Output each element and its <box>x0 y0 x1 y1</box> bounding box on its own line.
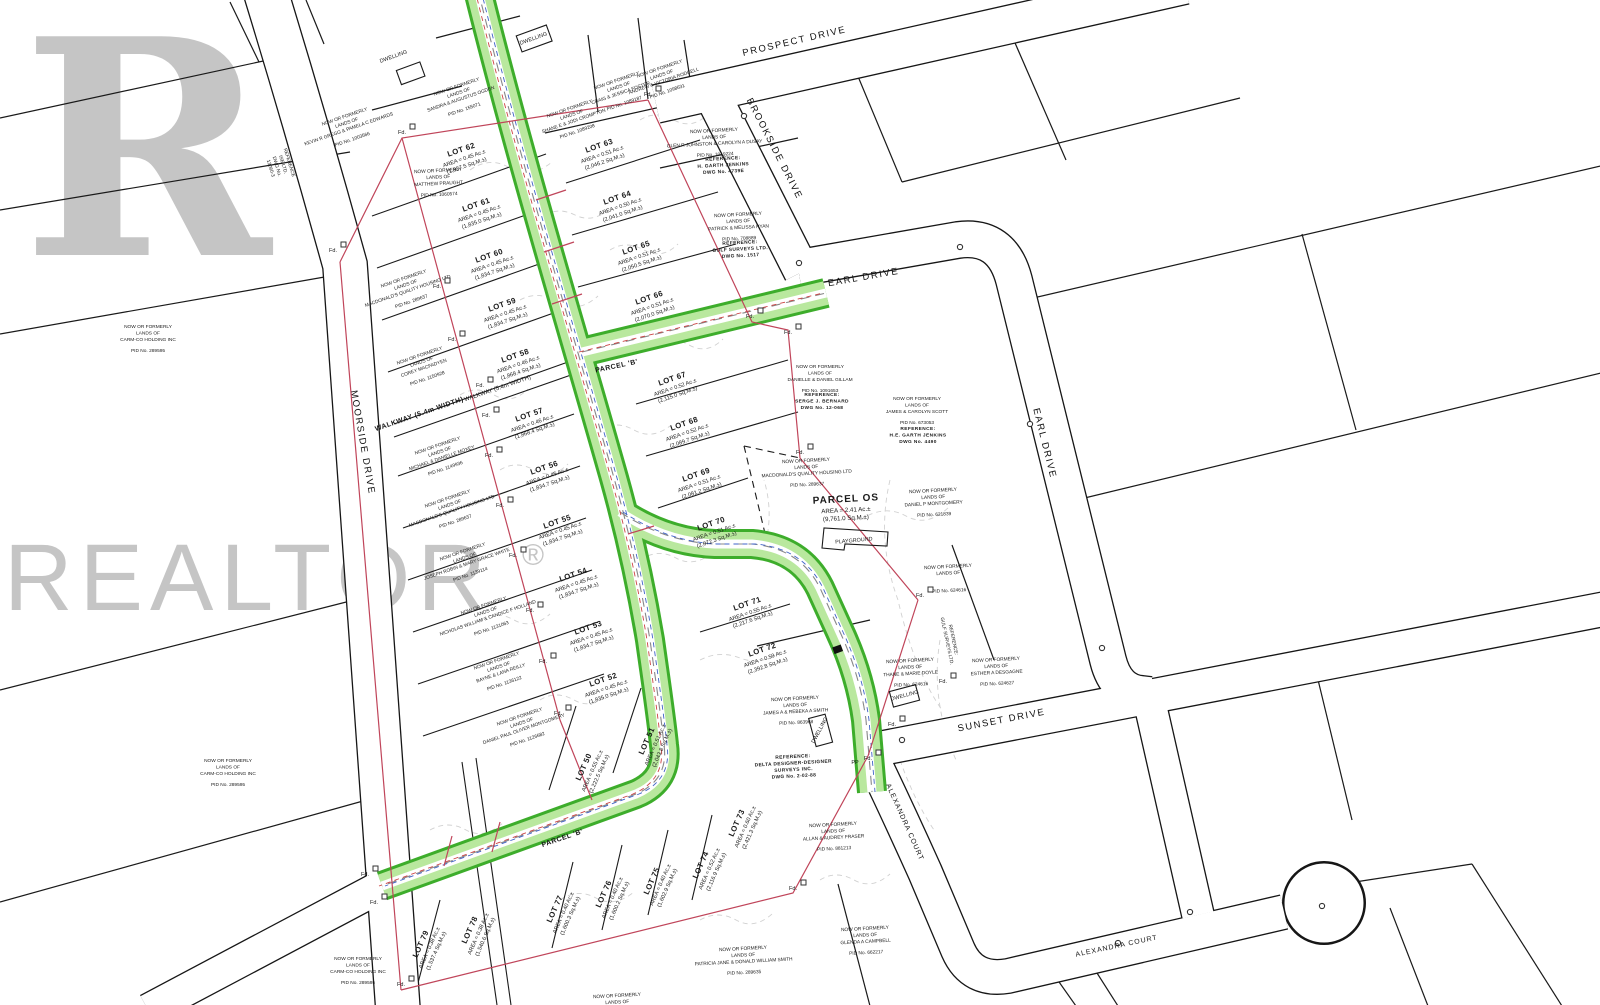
found-marker-box <box>928 587 933 592</box>
parcel-os-area-m: (9,761.0 Sq.M.±) <box>823 514 869 523</box>
owner-name: DANIELLE & DANIEL GILLAM <box>787 377 852 383</box>
found-marker-label: Fd. <box>539 659 547 665</box>
owner-pid: PID No. 662217 <box>849 949 884 957</box>
found-marker-label: Fd. <box>789 886 797 892</box>
owner-pid: PID No. 289595 <box>131 348 165 354</box>
owner-intro: NOW OR FORMERLY <box>414 167 463 176</box>
found-marker-label: Fd. <box>888 722 896 728</box>
lot-label: LOT 77AREA = 0.40 Ac.±(1,600.3 Sq.M.±) <box>542 887 583 938</box>
owner-intro: NOW OR FORMERLY <box>924 563 973 572</box>
plat-map-screenshot: { "watermark": { "logo_letter": "R", "br… <box>0 0 1600 1005</box>
found-marker-label: Fd. <box>397 982 405 988</box>
lot-label: LOT 65AREA = 0.51 Ac.±(2,050.5 Sq.M.±) <box>614 236 664 274</box>
found-marker-label: Fd. <box>784 330 792 336</box>
watermark-brand: REALTOR <box>4 525 493 631</box>
found-marker-box <box>758 308 763 313</box>
owner-label: NOW OR FORMERLYLANDS OFCARM-CO HOLDING I… <box>120 324 176 354</box>
found-marker-box <box>538 602 543 607</box>
lot-label: LOT 50AREA = 0.55 Ac.±(2,222.5 Sq.M.±) <box>571 745 612 796</box>
found-marker-label: Fd. <box>496 503 504 509</box>
owner-intro: LANDS OF <box>136 331 160 337</box>
owner-intro: LANDS OF <box>984 663 1008 670</box>
dwelling-label: DWELLING <box>379 49 408 64</box>
reference-line: DWG No. 1517 <box>722 252 760 260</box>
lot-label: LOT 71AREA = 0.55 Ac.±(2,217.6 Sq.M.±) <box>725 592 775 630</box>
found-marker-box <box>497 447 502 452</box>
owner-intro: NOW OR FORMERLY <box>334 956 383 962</box>
owner-label: NOW OR FORMERLYLANDS OFPATRICIA JANE & D… <box>694 943 794 978</box>
found-marker-box <box>508 497 513 502</box>
found-marker: Fd. <box>485 447 502 459</box>
owner-intro: LANDS OF <box>794 464 818 471</box>
owner-label: NOW OR FORMERLYLANDS OFPATRICK & MELISSA… <box>707 210 770 243</box>
owner-pid: PID No. 624616 <box>932 587 967 595</box>
owner-pid: PID No. 289635 <box>727 969 762 977</box>
reference-label: REFERENCE:SERGE J. BERNARDDWG No. 12-068 <box>795 392 849 411</box>
reference-line: REFERENCE: <box>775 753 810 761</box>
found-marker-box <box>445 278 450 283</box>
found-marker-label: Fd. <box>448 337 456 343</box>
lot-label: LOT 78AREA = 0.38 Ac.±(1,540.6 Sq.M.±) <box>457 908 498 959</box>
found-marker-box <box>808 444 813 449</box>
owner-name: ALLAN & AUDREY FRASER <box>803 833 865 842</box>
survey-plat-map: R REALTOR ® <box>0 0 1600 1005</box>
owner-intro: NOW OR FORMERLY <box>719 945 768 954</box>
lot-label: LOT 55AREA = 0.45 Ac.±(1,834.7 Sq.M.±) <box>535 510 585 548</box>
lot-label: LOT 67AREA = 0.52 Ac.±(2,115.0 Sq.M.±) <box>650 367 700 405</box>
owner-intro: LANDS OF <box>346 963 370 969</box>
parcel-os-name: PARCEL OS <box>812 492 879 506</box>
owner-intro: NOW OR FORMERLY <box>972 656 1021 665</box>
reference-line: REFERENCE: <box>804 392 839 398</box>
found-marker-box <box>409 976 414 981</box>
owner-intro: NOW OR FORMERLY <box>796 364 845 370</box>
owner-intro: LANDS OF <box>702 134 726 141</box>
found-marker-box <box>876 750 881 755</box>
dwelling-label: DWELLING <box>890 689 919 702</box>
survey-monument-icon <box>741 113 1324 945</box>
owner-intro: LANDS OF <box>426 174 450 181</box>
owner-label: NOW OR FORMERLYLANDS OFBAYNE & LANA REIL… <box>471 650 530 695</box>
owner-pid: PID No. 289637 <box>790 481 825 489</box>
found-marker-box <box>373 866 378 871</box>
owner-intro: NOW OR FORMERLY <box>809 821 858 830</box>
owner-intro: LANDS OF <box>921 494 945 501</box>
reference-label: REFERENCE:H.E. GARTH JENKINSDWG No. 4490 <box>889 426 946 445</box>
owner-intro: LANDS OF <box>853 932 877 939</box>
utility-line-blue <box>385 0 875 886</box>
dwelling-label: DWELLING <box>811 716 830 744</box>
reference-label: REFERENCE:GULF SURVEYS LTD. <box>939 616 961 666</box>
reference-line: GULF SURVEYS LTD. <box>712 245 768 254</box>
found-marker-label: Fd. <box>398 130 406 136</box>
reference-line: LANDS OF <box>605 999 629 1005</box>
found-marker-box <box>566 705 571 710</box>
reference-line: DWG No. 4490 <box>899 439 937 445</box>
found-marker-label: Fd. <box>746 314 754 320</box>
found-marker-label: Fd. <box>916 593 924 599</box>
owner-label: NOW OR FORMERLYLANDS OFGLENDA A CAMPBELL… <box>840 925 892 958</box>
found-marker: Fd. <box>476 377 493 389</box>
owner-label: NOW OR FORMERLYLANDS OFDANIEL PAUL OLIVE… <box>478 700 570 757</box>
lot-label: LOT 76AREA = 0.40 Ac.±(1,600.2 Sq.M.±) <box>591 872 632 923</box>
owner-intro: LANDS OF <box>808 371 832 377</box>
found-marker-box <box>951 673 956 678</box>
found-marker-label: Fd. <box>644 92 652 98</box>
owner-name: CARM-CO HOLDING INC <box>330 969 386 975</box>
found-marker-box <box>494 407 499 412</box>
found-marker: Fd. <box>916 587 933 599</box>
reference-line: H.E. GARTH JENKINS <box>889 433 946 439</box>
walkway-label: WALKWAY (5.4m WIDTH) <box>464 375 532 403</box>
found-marker-label: Fd. <box>485 453 493 459</box>
lot-label: LOT 74AREA = 0.52 Ac.±(2,116.9 Sq.M.±) <box>688 843 729 894</box>
owner-label: NOW OR FORMERLYLANDS OFJAMES A & REBEKA … <box>762 694 829 727</box>
owner-pid: PID No. 624616 <box>894 681 929 689</box>
reference-line: SERGE J. BERNARD <box>795 399 849 405</box>
lot-label: LOT 52AREA = 0.45 Ac.±(1,835.0 Sq.M.±) <box>581 668 631 706</box>
owner-pid: PID No. 863968 <box>779 719 814 727</box>
owner-pid: PID No. 1060574 <box>421 191 458 199</box>
dwelling-box <box>396 62 425 85</box>
lot-label: LOT 64AREA = 0.50 Ac.±(2,041.0 Sq.M.±) <box>595 186 645 224</box>
owner-name: CARM-CO HOLDING INC <box>120 337 176 343</box>
found-marker: Fd. <box>939 673 956 685</box>
owner-intro: NOW OR FORMERLY <box>893 396 942 402</box>
owner-label: NOW OR FORMERLYLANDS OFDANIELLE & DANIEL… <box>787 364 852 394</box>
found-marker-box <box>521 547 526 552</box>
owner-name: THANE & MARIE DOYLE <box>883 670 938 679</box>
found-marker-box <box>488 377 493 382</box>
owner-name: DANIEL P MONTGOMERY <box>904 499 963 508</box>
lot-label: LOT 60AREA = 0.45 Ac.±(1,834.7 Sq.M.±) <box>467 244 517 282</box>
owner-label: NOW OR FORMERLYLANDS OFJAMES & CAROLYN S… <box>886 396 948 426</box>
owner-intro: NOW OR FORMERLY <box>841 925 890 934</box>
owner-name: MATTHEW PRAUGHT <box>414 180 463 189</box>
lot-label: LOT 57AREA = 0.46 Ac.±(1,868.4 Sq.M.±) <box>507 403 557 441</box>
owner-intro: LANDS OF <box>905 403 929 409</box>
owner-pid: PID No. 881213 <box>817 845 852 853</box>
owner-intro: NOW OR FORMERLY <box>782 457 831 466</box>
owner-intro: LANDS OF <box>821 828 845 835</box>
lot-label: LOT 56AREA = 0.45 Ac.±(1,834.7 Sq.M.±) <box>522 456 572 494</box>
owner-intro: LANDS OF <box>936 570 960 577</box>
owner-name: JAMES & CAROLYN SCOTT <box>886 409 948 415</box>
owner-label: NOW OR FORMERLYLANDS OFDANIEL P MONTGOME… <box>904 486 965 519</box>
owner-intro: LANDS OF <box>783 702 807 709</box>
lot-label: LOT 63AREA = 0.51 Ac.±(2,046.2 Sq.M.±) <box>577 134 627 172</box>
reference-label: NOW OR FORMERLYLANDS OF <box>593 992 642 1005</box>
lot-label: LOT 72AREA = 0.59 Ac.±(2,392.8 Sq.M.±) <box>740 638 790 676</box>
owner-intro: LANDS OF <box>731 952 755 959</box>
found-marker-label: Fd. <box>476 383 484 389</box>
realtor-logo-r-icon: R <box>22 0 275 326</box>
reference-line: REFERENCE: <box>900 426 935 432</box>
lot-label: LOT 58AREA = 0.46 Ac.±(1,868.4 Sq.M.±) <box>493 344 543 382</box>
owner-pid: PID No. 624627 <box>980 680 1015 688</box>
pp-marker-label: PP <box>851 760 859 766</box>
owner-intro: LANDS OF <box>216 765 240 771</box>
found-marker-box <box>551 653 556 658</box>
owner-pid: PID No. 289595 <box>211 782 245 788</box>
found-marker-label: Fd. <box>554 711 562 717</box>
reference-label: REFERENCE:GULF SURVEYS LTD.DWG No. 1517 <box>712 239 769 261</box>
found-marker-label: Fd. <box>482 413 490 419</box>
owner-pid: PID No. 621839 <box>917 511 952 519</box>
found-marker: Fd. <box>482 407 499 419</box>
found-marker: Fd. <box>496 497 513 509</box>
owner-label: NOW OR FORMERLYLANDS OFESTHER A DESGAGNE… <box>970 656 1023 689</box>
lot-label: LOT 73AREA = 0.60 Ac.±(2,421.3 Sq.M.±) <box>724 801 765 852</box>
owner-intro: NOW OR FORMERLY <box>886 657 935 666</box>
owner-label: NOW OR FORMERLYLANDS OFCARM-CO HOLDING I… <box>200 758 256 788</box>
owner-name: ESTHER A DESGAGNE <box>971 669 1023 678</box>
found-marker-box <box>796 324 801 329</box>
found-marker-label: Fd. <box>526 608 534 614</box>
reference-line: NOW OR FORMERLY <box>593 992 642 1001</box>
found-marker-label: Fd. <box>329 248 337 254</box>
owner-intro: NOW OR FORMERLY <box>909 487 958 496</box>
owner-label: NOW OR FORMERLYLANDS OFMICHAEL & DANIELL… <box>404 432 480 483</box>
found-marker: Fd. <box>784 324 801 336</box>
lot-label: LOT 69AREA = 0.51 Ac.±(2,081.2 Sq.M.±) <box>674 463 724 501</box>
reference-label: REFERENCE:DELTA DESIGNER-DESIGNERSURVEYS… <box>754 752 833 782</box>
owner-name: CARM-CO HOLDING INC <box>200 771 256 777</box>
owner-label: NOW OR FORMERLYLANDS OFMATTHEW PRAUGHTPI… <box>413 167 464 200</box>
owner-pid: PID No. 673053 <box>900 420 934 426</box>
found-marker-box <box>656 86 661 91</box>
registered-mark-icon: ® <box>522 539 544 572</box>
found-marker-label: Fd. <box>509 553 517 559</box>
found-marker-box <box>460 331 465 336</box>
owner-intro: LANDS OF <box>898 664 922 671</box>
parcel-os-label: PARCEL OS AREA = 2.41 Ac.± (9,761.0 Sq.M… <box>812 492 879 545</box>
found-marker-label: Fd. <box>361 872 369 878</box>
found-marker-box <box>410 124 415 129</box>
owner-intro: NOW OR FORMERLY <box>771 695 820 704</box>
found-marker-label: Fd. <box>939 679 947 685</box>
found-marker-box <box>900 716 905 721</box>
owner-intro: NOW OR FORMERLY <box>124 324 173 330</box>
found-marker: Fd. <box>398 124 415 136</box>
found-marker-label: Fd. <box>370 900 378 906</box>
owner-intro: NOW OR FORMERLY <box>204 758 253 764</box>
owner-intro: LANDS OF <box>726 218 750 225</box>
found-marker-label: Fd. <box>864 756 872 762</box>
lot-label: LOT 53AREA = 0.45 Ac.±(1,834.7 Sq.M.±) <box>566 616 616 654</box>
owner-pid: PID No. 289595 <box>341 980 375 986</box>
owner-name: GLENDA A CAMPBELL <box>840 938 891 947</box>
found-marker: Fd. <box>539 653 556 665</box>
found-marker-box <box>801 880 806 885</box>
reference-line: DWG No. 12-068 <box>801 405 844 411</box>
found-marker-label: Fd. <box>433 284 441 290</box>
owner-label: NOW OR FORMERLYLANDS OFALLAN & AUDREY FR… <box>802 820 866 853</box>
owner-label: NOW OR FORMERLYLANDS OFMACDONALD'S QUALI… <box>761 456 853 491</box>
found-marker-label: Fd. <box>796 450 804 456</box>
found-marker-box <box>382 894 387 899</box>
found-marker-box <box>341 242 346 247</box>
